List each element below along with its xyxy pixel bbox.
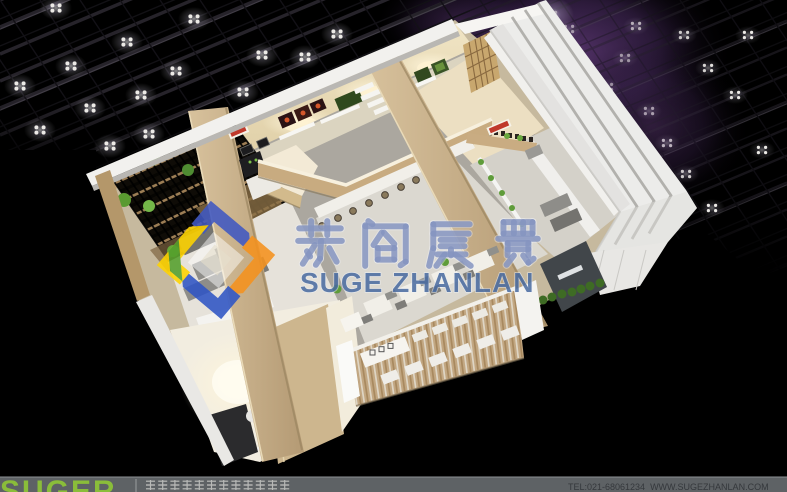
svg-text:TEL:021-68061234 WWW.SUGEZHAN: TEL:021-68061234 WWW.SUGEZHANLAN.COM: [568, 482, 769, 492]
svg-text:SUGE ZHANLAN: SUGE ZHANLAN: [300, 267, 534, 298]
svg-text:SUGER: SUGER: [0, 475, 117, 492]
